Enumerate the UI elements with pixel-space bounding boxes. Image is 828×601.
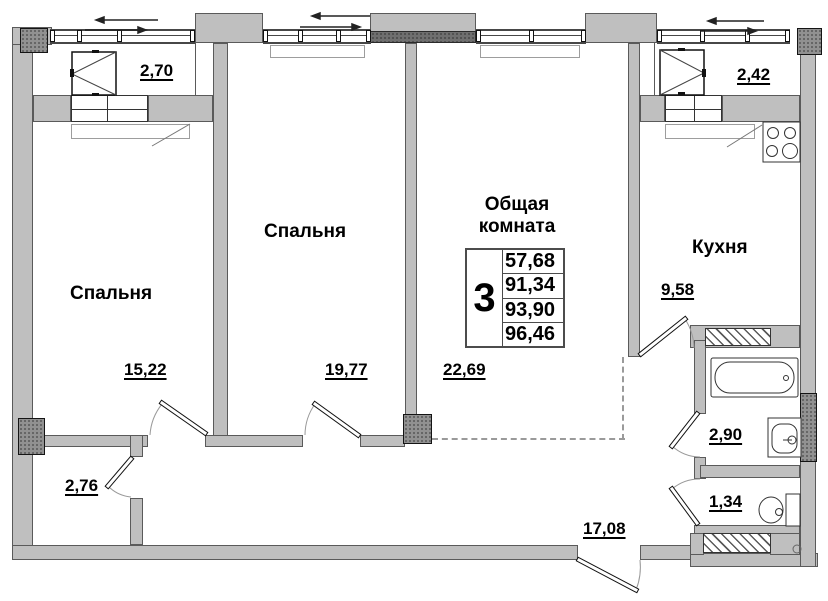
column-top-right: [797, 28, 822, 55]
vent-shaft-kitchen-bath: [705, 328, 771, 346]
living-room-area: 22,69: [443, 360, 486, 380]
wall-bottom-right: [690, 553, 818, 567]
wall-shaft-left-fill: [690, 533, 704, 555]
kitchen-name: Кухня: [692, 237, 748, 259]
toilet-icon: [759, 494, 800, 526]
wall-right: [800, 28, 816, 567]
window-casement-icon-right: [660, 48, 706, 95]
column-living-corner: [403, 414, 432, 444]
wall-closet-right: [130, 498, 143, 545]
bathroom-area: 2,90: [709, 425, 742, 445]
living-room-name: Общая комната: [461, 194, 573, 238]
wall-top-segment-c: [585, 13, 657, 43]
wall-top-pier: [370, 13, 476, 33]
wall-bottom-mid: [640, 545, 697, 560]
column-top-left: [20, 28, 48, 53]
wall-bottom-left: [12, 545, 578, 560]
wall-living-kitchen: [628, 43, 640, 357]
toilet-area: 1,34: [709, 492, 742, 512]
wall-bath-left: [694, 340, 706, 414]
balcony-right-edge: [654, 43, 655, 95]
summary-value-1: 57,68: [503, 250, 563, 274]
wall-bedroom2-living: [405, 43, 417, 416]
vent-block-right: [800, 393, 817, 462]
stove-icon: [763, 122, 800, 162]
balcony-left-area: 2,70: [140, 61, 173, 81]
balcony-right-area: 2,42: [737, 65, 770, 85]
column-left-mid: [18, 418, 45, 455]
bedroom-left-name: Спальня: [70, 283, 152, 305]
floor-plan: 2,70 2,42 Спальня 15,22 Спальня 19,77 Об…: [0, 0, 828, 601]
dashed-boundary-vertical: [622, 357, 624, 440]
sill-bedroom-left: [71, 124, 190, 139]
window-living-room: [476, 29, 586, 44]
vent-shaft-toilet: [703, 533, 771, 553]
wall-bedroom-divider: [213, 43, 228, 445]
wall-hall-top-c: [360, 435, 405, 447]
balcony-door-window-right: [665, 95, 722, 122]
wall-balcony-right-a: [640, 95, 665, 122]
rooms-count: 3: [467, 250, 503, 346]
kitchen-area: 9,58: [661, 280, 694, 300]
wall-top-pier-vent: [370, 31, 476, 43]
dashed-boundary-horizontal: [432, 438, 625, 440]
hallway-area: 17,08: [583, 519, 626, 539]
balcony-left-edge: [195, 30, 196, 95]
summary-value-3: 93,90: [503, 299, 563, 323]
window-bedroom-middle: [263, 29, 371, 44]
bedroom-left-area: 15,22: [124, 360, 167, 380]
wall-hall-top-b: [205, 435, 303, 447]
wall-left: [12, 27, 33, 560]
wall-closet-stub: [130, 435, 143, 457]
closet-area: 2,76: [65, 476, 98, 496]
sill-kitchen: [665, 124, 755, 139]
glazing-balcony-right: [657, 29, 790, 44]
wall-balcony-left-a: [33, 95, 71, 122]
sill-living-room: [480, 45, 580, 58]
wall-shaft-right-fill: [770, 533, 800, 555]
sill-bedroom-middle: [270, 45, 365, 58]
wall-balcony-left-b: [148, 95, 213, 122]
bedroom-middle-name: Спальня: [264, 221, 346, 243]
bathtub-icon: [711, 358, 798, 397]
glazing-balcony-left: [50, 29, 195, 44]
apartment-summary-table: 3 57,68 91,34 93,90 96,46: [465, 248, 565, 348]
wall-balcony-right-b: [722, 95, 800, 122]
balcony-door-window-left: [71, 95, 148, 122]
bedroom-middle-area: 19,77: [325, 360, 368, 380]
window-casement-icon-left: [70, 50, 116, 96]
summary-value-4: 96,46: [503, 323, 563, 346]
sink-icon: [768, 418, 801, 457]
wall-top-segment-a: [195, 13, 263, 43]
wall-bath-toilet: [700, 465, 800, 478]
summary-value-2: 91,34: [503, 274, 563, 298]
